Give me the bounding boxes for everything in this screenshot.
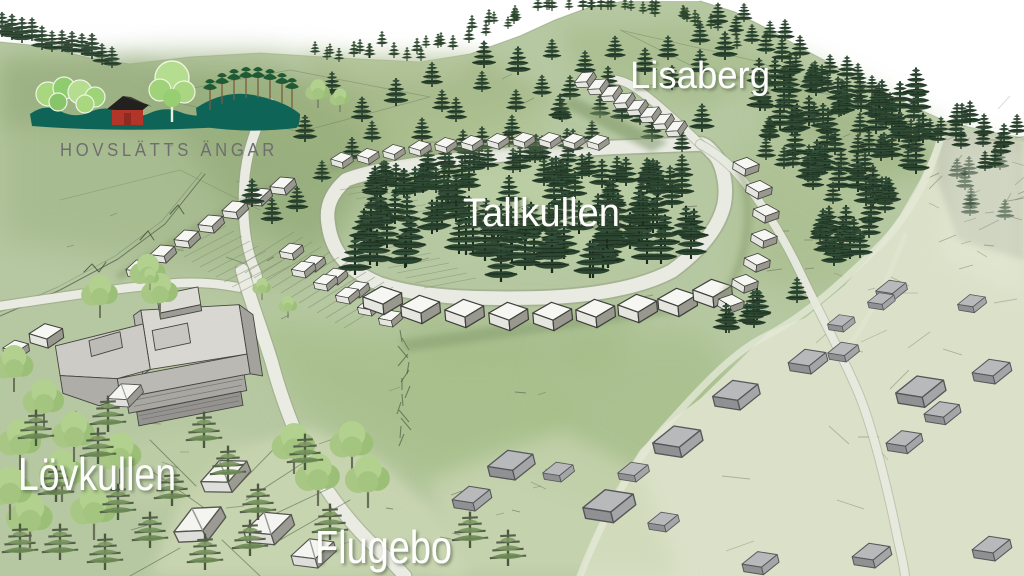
svg-text:Flugebo: Flugebo — [315, 521, 452, 573]
svg-text:Lisaberg: Lisaberg — [630, 55, 770, 97]
svg-text:Tallkullen: Tallkullen — [463, 191, 620, 235]
svg-text:HOVSLÄTTS ÄNGAR: HOVSLÄTTS ÄNGAR — [60, 140, 278, 160]
svg-text:Lövkullen: Lövkullen — [18, 448, 176, 500]
